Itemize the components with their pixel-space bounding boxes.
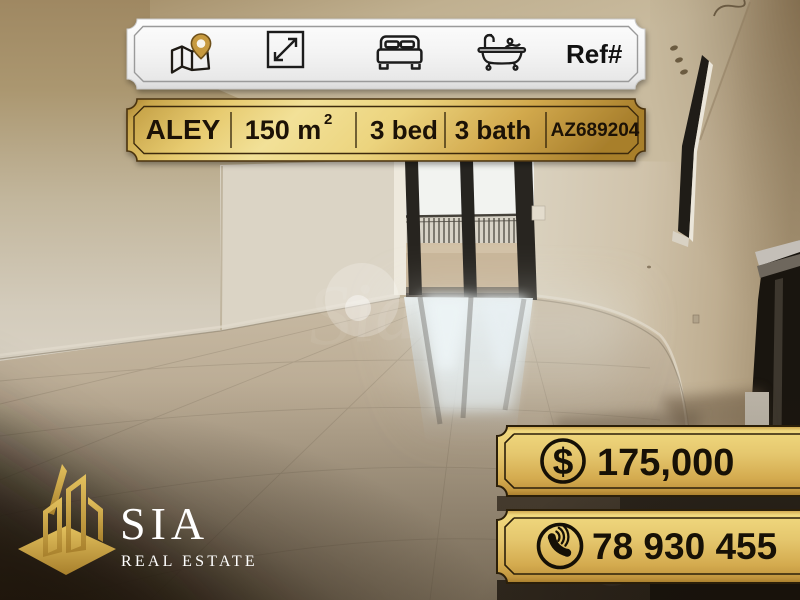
svg-text:3 bath: 3 bath <box>455 115 532 145</box>
svg-text:78 930 455: 78 930 455 <box>592 526 777 567</box>
svg-text:150 m: 150 m <box>245 115 322 145</box>
svg-text:Ref#: Ref# <box>566 39 623 69</box>
svg-text:SIA: SIA <box>120 498 209 549</box>
svg-text:$: $ <box>553 441 574 482</box>
svg-text:ALEY: ALEY <box>146 114 221 145</box>
svg-text:2: 2 <box>324 111 332 128</box>
svg-text:175,000: 175,000 <box>597 442 734 484</box>
svg-text:REAL ESTATE: REAL ESTATE <box>121 553 258 570</box>
svg-text:3 bed: 3 bed <box>370 115 438 145</box>
svg-text:AZ689204: AZ689204 <box>551 120 640 141</box>
